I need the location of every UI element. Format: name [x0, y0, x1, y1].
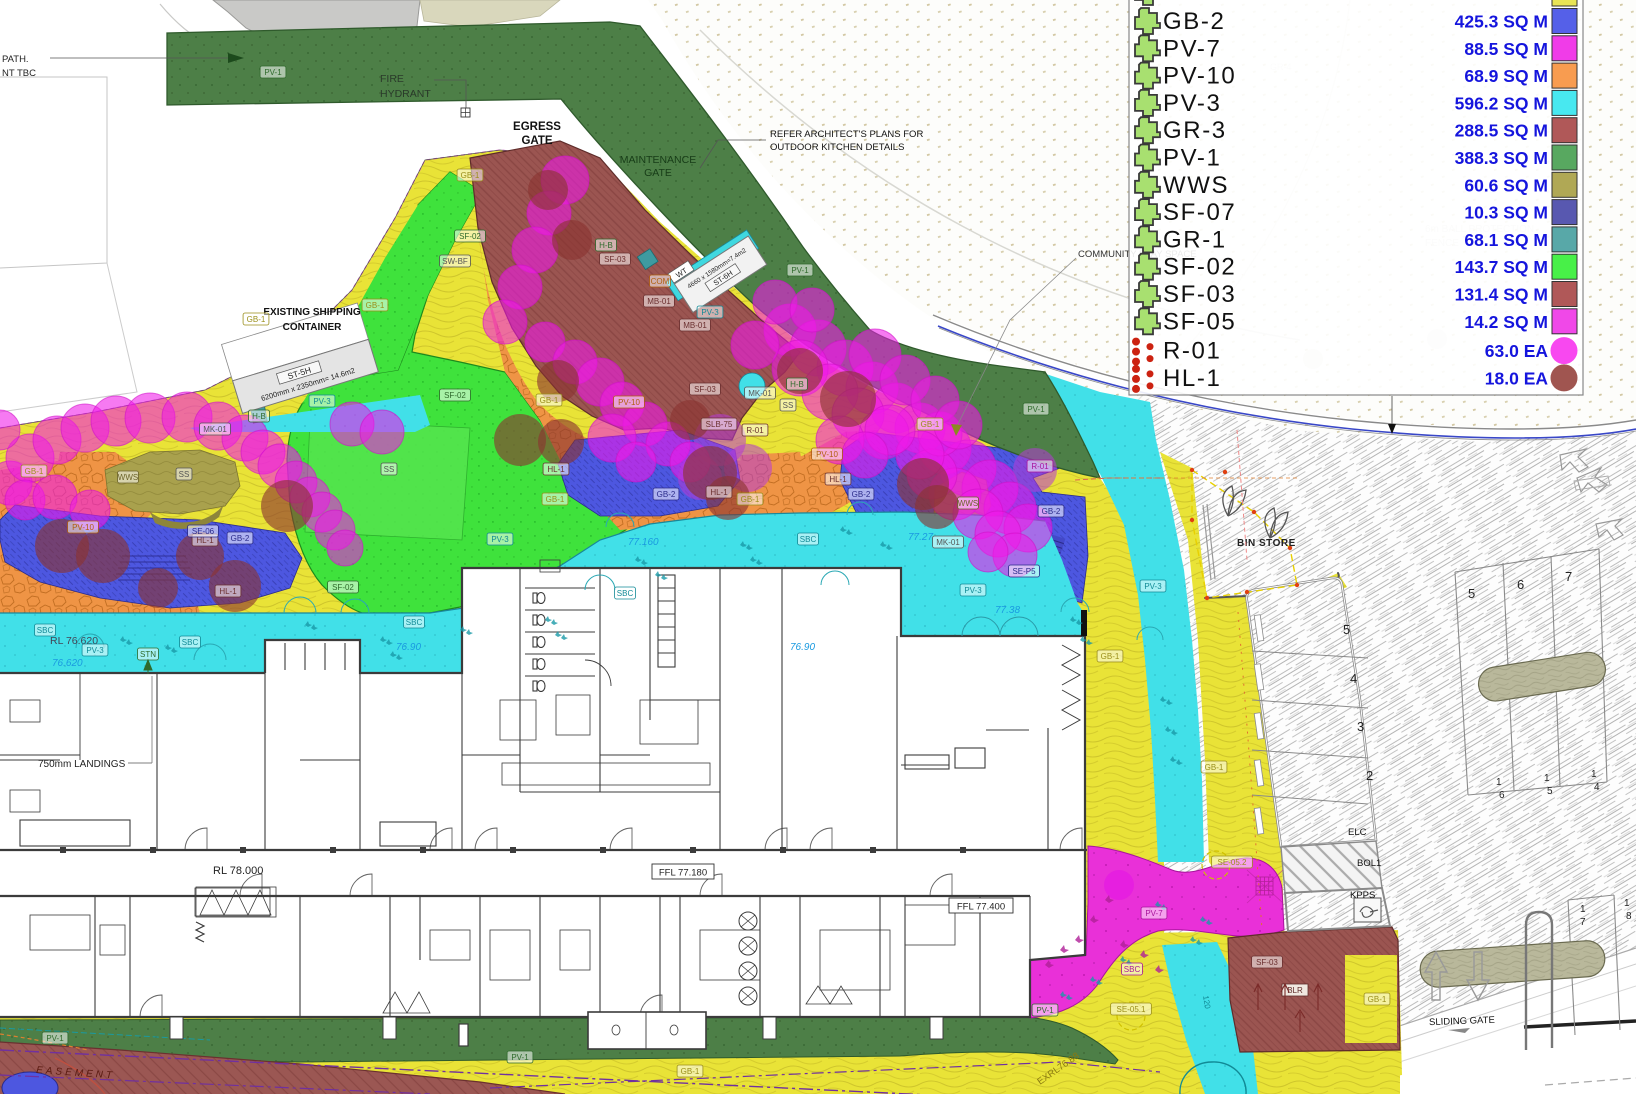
svg-text:GB-1: GB-1 — [366, 301, 385, 310]
svg-text:131.4 SQ M: 131.4 SQ M — [1455, 285, 1548, 305]
svg-text:SW-BF: SW-BF — [442, 257, 468, 266]
svg-text:FFL 77.180: FFL 77.180 — [659, 868, 707, 879]
svg-text:GB-2: GB-2 — [852, 490, 871, 499]
svg-text:GATE: GATE — [644, 167, 672, 179]
svg-text:SE-06: SE-06 — [192, 527, 215, 536]
svg-text:SE-P5: SE-P5 — [1012, 567, 1036, 576]
svg-text:GB-1: GB-1 — [1205, 763, 1224, 772]
svg-text:GB-1: GB-1 — [921, 420, 940, 429]
svg-text:HL-1: HL-1 — [219, 587, 237, 596]
svg-text:HL-1: HL-1 — [710, 488, 728, 497]
svg-text:SBC: SBC — [1124, 965, 1141, 974]
svg-text:6: 6 — [1517, 577, 1524, 592]
svg-text:596.2 SQ M: 596.2 SQ M — [1455, 93, 1548, 113]
svg-text:388.3 SQ M: 388.3 SQ M — [1455, 148, 1548, 168]
svg-text:143.7 SQ M: 143.7 SQ M — [1455, 257, 1548, 277]
svg-text:PV-1: PV-1 — [1163, 145, 1221, 172]
svg-text:4: 4 — [1350, 671, 1357, 686]
svg-text:FIRE: FIRE — [380, 73, 404, 85]
svg-text:GB-2: GB-2 — [1163, 8, 1225, 35]
svg-text:GB-1: GB-1 — [1163, 0, 1225, 6]
svg-text:288.5 SQ M: 288.5 SQ M — [1455, 121, 1548, 141]
svg-text:68.1 SQ M: 68.1 SQ M — [1464, 230, 1548, 250]
svg-text:77.27: 77.27 — [908, 532, 933, 543]
svg-text:SF-02: SF-02 — [459, 232, 481, 241]
svg-text:SF-02: SF-02 — [1163, 254, 1236, 281]
svg-text:KPPS: KPPS — [1350, 890, 1375, 901]
svg-text:76.90: 76.90 — [790, 642, 815, 653]
svg-text:GB-1: GB-1 — [247, 315, 266, 324]
svg-text:GB-1: GB-1 — [546, 495, 565, 504]
svg-text:PV-3: PV-3 — [313, 397, 331, 406]
svg-text:WWS: WWS — [958, 499, 978, 508]
svg-text:14.2 SQ M: 14.2 SQ M — [1464, 312, 1548, 332]
svg-text:76.620: 76.620 — [52, 658, 83, 669]
svg-text:GATE: GATE — [521, 135, 552, 147]
svg-text:PV-7: PV-7 — [1163, 35, 1221, 62]
svg-text:750mm LANDINGS: 750mm LANDINGS — [38, 759, 126, 770]
svg-text:5: 5 — [1547, 786, 1553, 797]
svg-text:SF-03: SF-03 — [1256, 958, 1278, 967]
svg-text:MB-01: MB-01 — [647, 297, 671, 306]
svg-text:SF-05: SF-05 — [1163, 308, 1236, 335]
svg-text:PATH.: PATH. — [2, 54, 29, 65]
svg-text:PV-1: PV-1 — [264, 68, 282, 77]
svg-text:HYDRANT: HYDRANT — [380, 88, 431, 100]
svg-text:REFER ARCHITECT'S PLANS FOR: REFER ARCHITECT'S PLANS FOR — [770, 129, 923, 140]
svg-text:PV-1: PV-1 — [1036, 1006, 1054, 1015]
svg-text:76.90: 76.90 — [396, 642, 421, 653]
svg-text:PV-10: PV-10 — [1163, 63, 1236, 90]
svg-text:ELC: ELC — [1348, 827, 1367, 838]
svg-text:GB-1: GB-1 — [461, 171, 480, 180]
svg-text:GB-1: GB-1 — [1101, 652, 1120, 661]
svg-text:PV-1: PV-1 — [511, 1053, 529, 1062]
svg-text:NT TBC: NT TBC — [2, 68, 36, 79]
svg-text:1: 1 — [1591, 769, 1597, 780]
svg-text:7: 7 — [1580, 917, 1586, 928]
svg-text:GR-1: GR-1 — [1163, 226, 1227, 253]
svg-text:PV-3: PV-3 — [1144, 582, 1162, 591]
svg-text:18.0 EA: 18.0 EA — [1485, 368, 1549, 388]
svg-text:MK-01: MK-01 — [936, 538, 960, 547]
svg-text:SF-02: SF-02 — [444, 391, 466, 400]
svg-text:PV-3: PV-3 — [1163, 90, 1221, 117]
svg-text:1: 1 — [1496, 777, 1502, 788]
svg-text:MK-01: MK-01 — [748, 389, 772, 398]
svg-text:PV-1: PV-1 — [1027, 405, 1045, 414]
svg-text:EXISTING SHIPPING: EXISTING SHIPPING — [263, 307, 360, 318]
svg-text:GB-1: GB-1 — [25, 467, 44, 476]
svg-text:SF-03: SF-03 — [1163, 281, 1236, 308]
svg-text:OUTDOOR KITCHEN DETAILS: OUTDOOR KITCHEN DETAILS — [770, 142, 904, 153]
svg-text:WWS: WWS — [118, 473, 138, 482]
svg-text:GR-3: GR-3 — [1163, 117, 1227, 144]
svg-text:2: 2 — [1366, 768, 1373, 783]
svg-text:PV-3: PV-3 — [491, 535, 509, 544]
svg-text:SS: SS — [179, 470, 190, 479]
svg-text:FFL 77.400: FFL 77.400 — [957, 902, 1005, 913]
svg-text:H-B: H-B — [599, 241, 613, 250]
svg-text:CONTAINER: CONTAINER — [283, 322, 342, 333]
svg-text:1: 1 — [1544, 773, 1550, 784]
svg-text:R-01: R-01 — [746, 426, 764, 435]
svg-text:GB-2: GB-2 — [657, 490, 676, 499]
svg-text:6: 6 — [1499, 790, 1505, 801]
svg-text:SS: SS — [783, 401, 794, 410]
svg-text:MAINTENANCE: MAINTENANCE — [620, 154, 696, 166]
svg-text:77.38: 77.38 — [995, 605, 1020, 616]
svg-text:MB-01: MB-01 — [683, 321, 707, 330]
svg-text:60.6 SQ M: 60.6 SQ M — [1464, 175, 1548, 195]
svg-text:BLR: BLR — [1287, 986, 1303, 995]
svg-text:SBC: SBC — [182, 638, 199, 647]
svg-text:5: 5 — [1343, 622, 1350, 637]
svg-text:SBC: SBC — [406, 618, 423, 627]
svg-text:4: 4 — [1594, 782, 1600, 793]
svg-text:R-01: R-01 — [1031, 462, 1049, 471]
svg-text:STN: STN — [140, 650, 156, 659]
svg-text:PV-1: PV-1 — [791, 266, 809, 275]
svg-text:R-01: R-01 — [1163, 338, 1221, 365]
svg-text:SF-07: SF-07 — [1163, 199, 1236, 226]
svg-text:PV-3: PV-3 — [701, 308, 719, 317]
svg-text:HL-1: HL-1 — [547, 465, 565, 474]
svg-text:GB-2: GB-2 — [231, 534, 250, 543]
svg-text:SLB-75: SLB-75 — [706, 420, 733, 429]
svg-text:PV-10: PV-10 — [816, 450, 838, 459]
svg-text:425.3 SQ M: 425.3 SQ M — [1455, 12, 1548, 32]
svg-text:SBC: SBC — [617, 589, 634, 598]
svg-text:H-B: H-B — [790, 380, 804, 389]
svg-text:88.5 SQ M: 88.5 SQ M — [1464, 39, 1548, 59]
svg-text:SBC: SBC — [800, 535, 817, 544]
svg-text:BOL1: BOL1 — [1357, 858, 1381, 869]
svg-text:68.9 SQ M: 68.9 SQ M — [1464, 66, 1548, 86]
svg-text:RL 78.000: RL 78.000 — [213, 865, 263, 877]
svg-text:SLIDING GATE: SLIDING GATE — [1429, 1015, 1495, 1028]
svg-text:PV-7: PV-7 — [1145, 909, 1163, 918]
svg-text:7: 7 — [1565, 569, 1572, 584]
svg-text:WWS: WWS — [1163, 172, 1229, 199]
svg-text:SS: SS — [384, 465, 395, 474]
svg-text:GB-1: GB-1 — [540, 396, 559, 405]
svg-text:SF-03: SF-03 — [604, 255, 626, 264]
svg-text:77.160: 77.160 — [628, 537, 659, 548]
svg-text:10.3 SQ M: 10.3 SQ M — [1464, 203, 1548, 223]
svg-text:EGRESS: EGRESS — [513, 121, 561, 133]
svg-text:GB-2: GB-2 — [1042, 507, 1061, 516]
svg-text:GB-1: GB-1 — [1368, 995, 1387, 1004]
svg-text:3: 3 — [1357, 719, 1364, 734]
svg-text:8: 8 — [1626, 911, 1632, 922]
svg-text:GB-1: GB-1 — [741, 495, 760, 504]
svg-text:GB-1: GB-1 — [681, 1067, 700, 1076]
svg-text:H-B: H-B — [252, 412, 266, 421]
svg-text:HL-1: HL-1 — [829, 475, 847, 484]
svg-text:1: 1 — [1624, 898, 1630, 909]
svg-text:PV-3: PV-3 — [964, 586, 982, 595]
svg-text:SBC: SBC — [37, 626, 54, 635]
svg-text:63.0 EA: 63.0 EA — [1485, 341, 1549, 361]
svg-text:PV-1: PV-1 — [46, 1034, 64, 1043]
svg-text:PV-3: PV-3 — [86, 646, 104, 655]
svg-text:SF-02: SF-02 — [332, 583, 354, 592]
svg-text:HL-1: HL-1 — [1163, 365, 1221, 392]
svg-text:PV-10: PV-10 — [72, 523, 94, 532]
svg-text:SE-05.1: SE-05.1 — [1117, 1005, 1146, 1014]
svg-text:MK-01: MK-01 — [203, 425, 227, 434]
svg-text:SE-05.2: SE-05.2 — [1218, 858, 1247, 867]
svg-text:1: 1 — [1580, 904, 1586, 915]
svg-text:5: 5 — [1468, 586, 1475, 601]
svg-text:COM: COM — [651, 277, 670, 286]
svg-text:SF-03: SF-03 — [694, 385, 716, 394]
svg-text:PV-10: PV-10 — [618, 398, 640, 407]
